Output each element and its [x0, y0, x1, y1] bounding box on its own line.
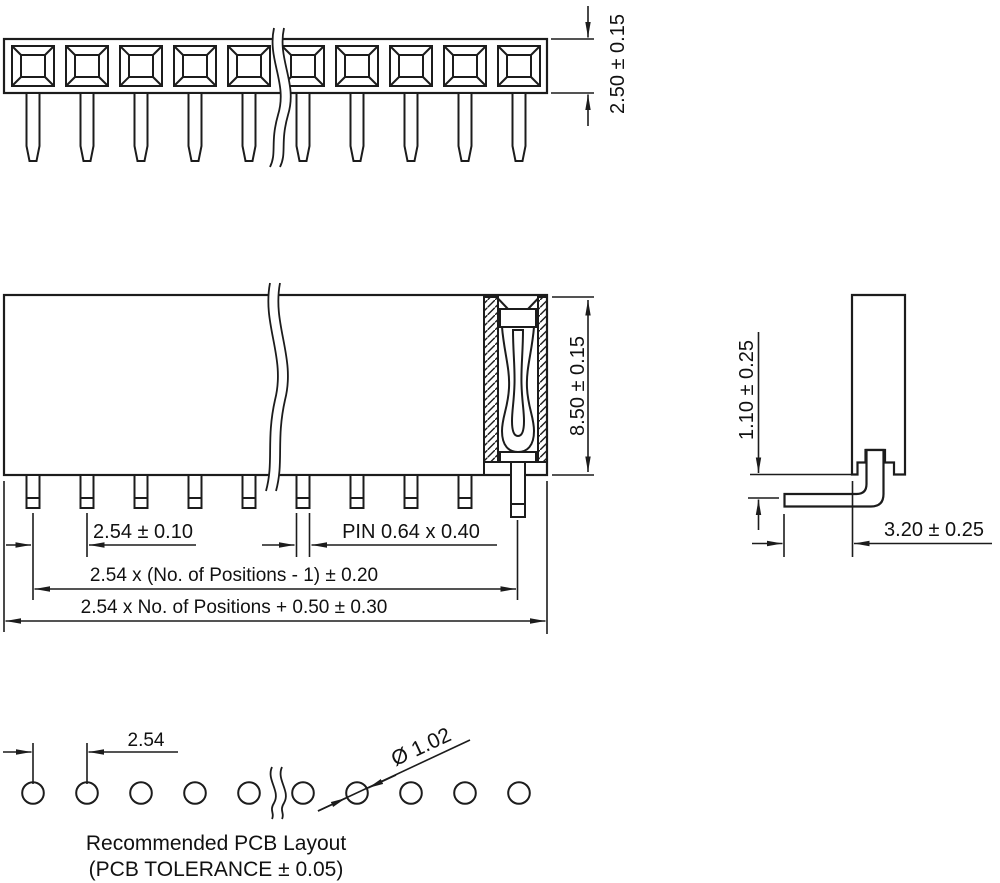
pcb-hole — [130, 782, 152, 804]
contact-head — [500, 309, 536, 327]
socket-opening — [444, 46, 486, 86]
pcb-hole — [184, 782, 206, 804]
solder-pin — [459, 93, 472, 161]
contact-base — [500, 452, 536, 462]
dim-label-pin-pitch: 2.54 ± 0.10 — [93, 521, 193, 543]
contact-pin — [511, 462, 525, 517]
socket-opening — [120, 46, 162, 86]
solder-pin — [135, 93, 148, 161]
socket-opening — [498, 46, 540, 86]
pcb-hole — [76, 782, 98, 804]
solder-pin — [81, 93, 94, 161]
solder-pin — [459, 475, 472, 508]
pcb-tolerance-note: (PCB TOLERANCE ± 0.05) — [89, 858, 344, 881]
socket-opening — [228, 46, 270, 86]
solder-pin — [405, 475, 418, 508]
drawing-svg: 2.50 ± 0.15 — [0, 0, 1000, 883]
connector-technical-drawing: 2.50 ± 0.15 — [0, 0, 1000, 883]
dim-label-standoff-height: 1.10 ± 0.25 — [736, 340, 758, 440]
solder-pin — [297, 93, 310, 161]
dim-label-body-height: 8.50 ± 0.15 — [567, 336, 589, 436]
dim-label-socket-height: 2.50 ± 0.15 — [607, 14, 629, 114]
front-view — [4, 283, 547, 517]
socket-opening — [336, 46, 378, 86]
dim-label-hole-pitch: 2.54 — [128, 730, 165, 751]
pcb-hole — [454, 782, 476, 804]
solder-pin — [81, 475, 94, 508]
solder-pin — [243, 93, 256, 161]
pcb-hole — [292, 782, 314, 804]
contact-slot — [512, 330, 524, 436]
solder-pin — [243, 475, 256, 508]
solder-pin — [27, 475, 40, 508]
dim-label-pin-size: PIN 0.64 x 0.40 — [342, 521, 480, 543]
solder-pin — [351, 475, 364, 508]
solder-pin — [513, 93, 526, 161]
solder-pin — [297, 475, 310, 508]
socket-opening — [174, 46, 216, 86]
socket-opening — [12, 46, 54, 86]
hatched-wall-right — [538, 297, 547, 462]
socket-opening — [390, 46, 432, 86]
dim-label-pin-protrusion: 3.20 ± 0.25 — [884, 519, 984, 541]
pcb-layout-title: Recommended PCB Layout — [86, 832, 346, 855]
solder-pin — [405, 93, 418, 161]
dim-label-positions-span: 2.54 x (No. of Positions - 1) ± 0.20 — [90, 565, 378, 586]
socket-opening — [66, 46, 108, 86]
hatched-wall-left — [484, 297, 498, 462]
solder-pin — [351, 93, 364, 161]
pcb-hole — [22, 782, 44, 804]
pcb-hole — [238, 782, 260, 804]
side-view-body — [852, 295, 905, 475]
solder-pin — [27, 93, 40, 161]
dim-label-overall-length: 2.54 x No. of Positions + 0.50 ± 0.30 — [81, 597, 388, 618]
pcb-hole — [400, 782, 422, 804]
solder-pin — [189, 93, 202, 161]
pcb-hole — [508, 782, 530, 804]
solder-pin — [135, 475, 148, 508]
solder-pin — [189, 475, 202, 508]
